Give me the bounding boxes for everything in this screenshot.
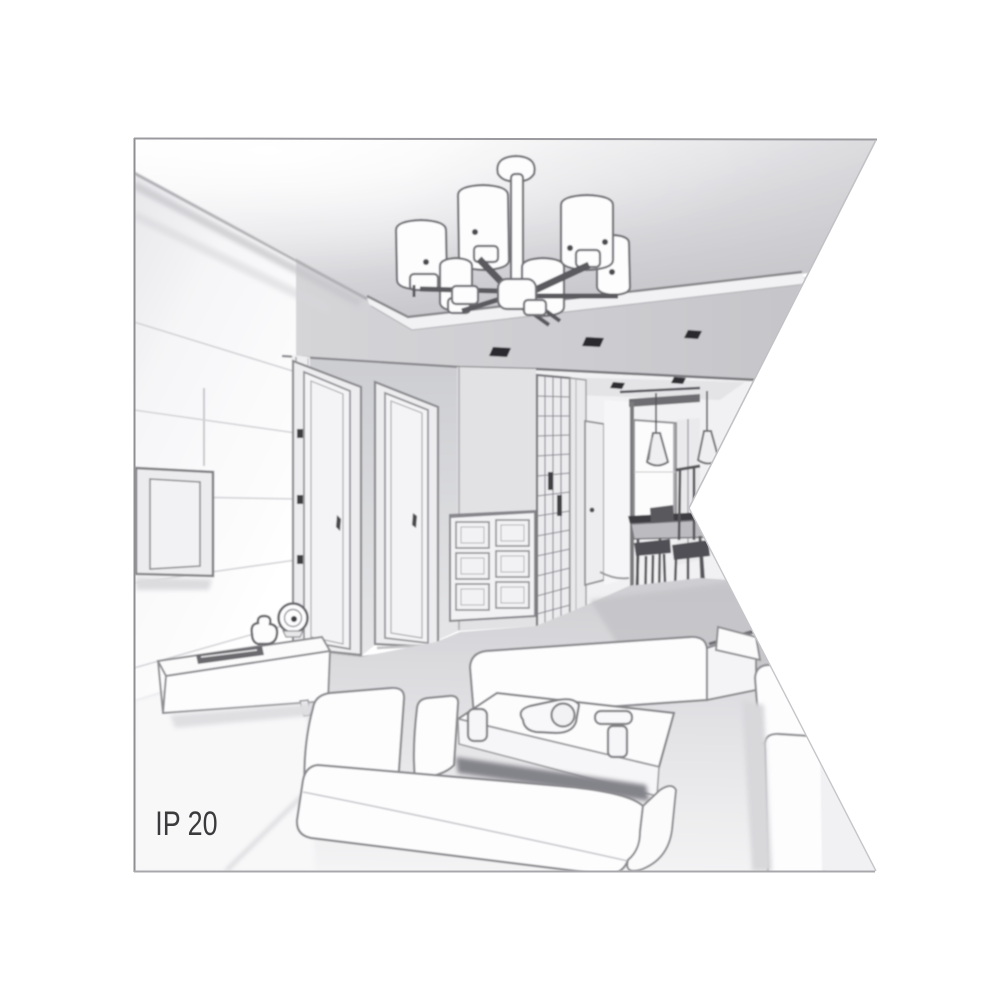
svg-text:IP 20: IP 20 [155, 804, 217, 843]
